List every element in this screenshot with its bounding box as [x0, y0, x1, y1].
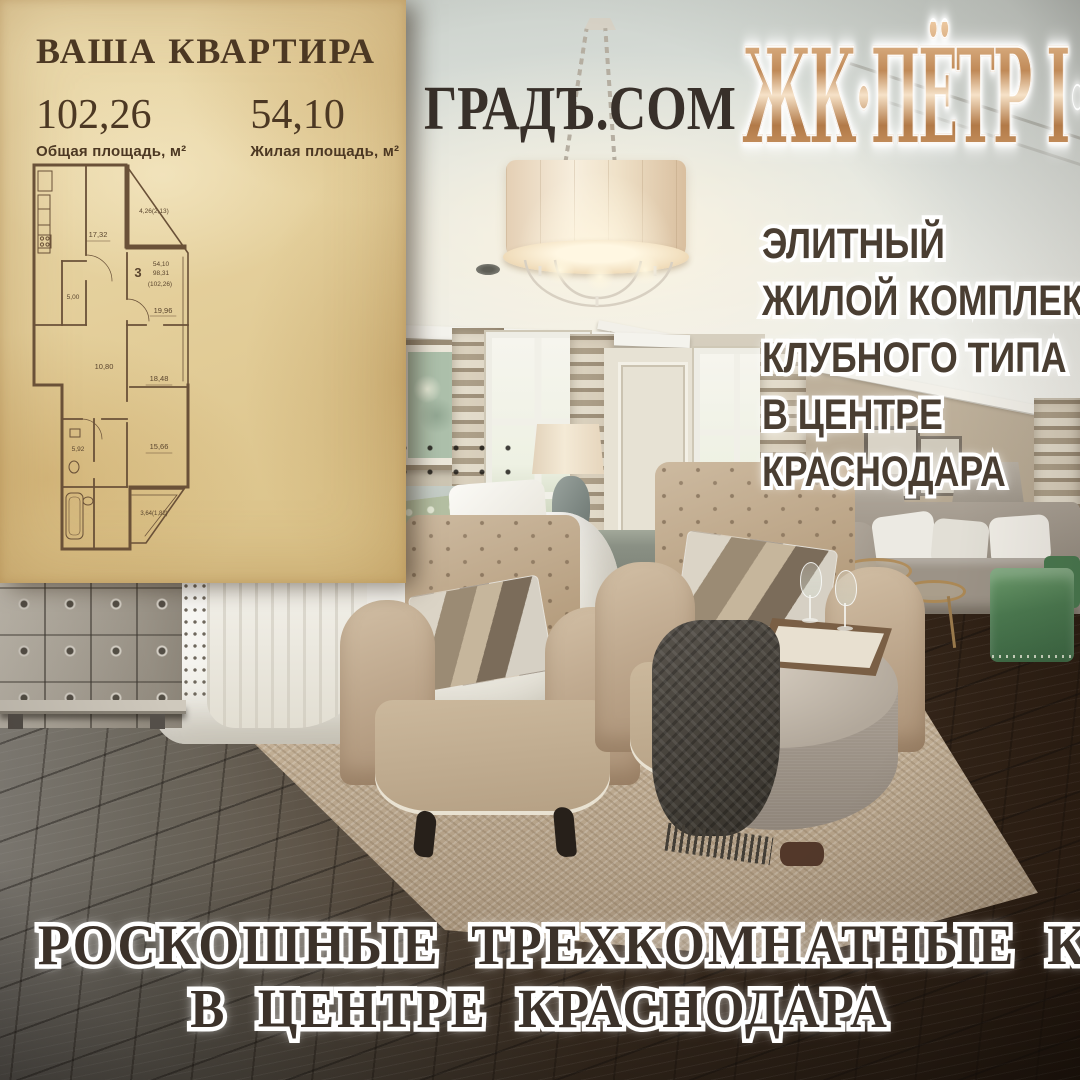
stat-value: 102,26 — [36, 92, 186, 138]
room-area-label: 10,80 — [95, 362, 114, 371]
stat-total-area: 102,26 Общая площадь, м² — [36, 92, 186, 160]
room-area-label: 5,00 — [67, 294, 80, 301]
room-area-label: 4,26(2,13) — [139, 208, 169, 215]
headline-text: РОСКОШНЫЕ ТРЕХКОМНАТНЫЕ КВАРТИРЫ — [38, 914, 1080, 977]
room-area-label: 17,32 — [89, 230, 108, 239]
stat-value: 54,10 — [250, 92, 399, 138]
rooms-count-label: 3 — [134, 265, 141, 280]
feature-line: КРАСНОДАРАКРАСНОДАРА — [762, 444, 1036, 501]
feature-line-text: КРАСНОДАРА — [762, 448, 1006, 496]
area-label: 98,31 — [153, 270, 170, 277]
floorplan: 17,32 4,26(2,13) 3 54,10 98,31 (102,26) … — [26, 156, 212, 576]
living-area-label: 54,10 — [153, 261, 170, 268]
room-area-label: 5,92 — [72, 446, 85, 453]
floorplan-svg: 17,32 4,26(2,13) 3 54,10 98,31 (102,26) … — [26, 156, 212, 576]
features-block: ЭЛИТНЫЙЭЛИТНЫЙ ЖИЛОЙ КОМПЛЕКСЖИЛОЙ КОМПЛ… — [762, 216, 1080, 501]
total-area-label: (102,26) — [148, 281, 172, 288]
feature-line: В ЦЕНТРЕВ ЦЕНТРЕ — [762, 387, 1036, 444]
headline: РОСКОШНЫЕ ТРЕХКОМНАТНЫЕ КВАРТИРЫРОСКОШНЫ… — [0, 914, 1080, 1040]
feature-line-text: ЭЛИТНЫЙ — [762, 220, 945, 268]
headline-text: В ЦЕНТРЕ КРАСНОДАРА — [190, 978, 890, 1039]
stat-label: Жилая площадь, м² — [250, 143, 399, 160]
room-area-label: 15,66 — [150, 442, 169, 451]
apartment-panel: ВАША КВАРТИРА 102,26 Общая площадь, м² 5… — [0, 0, 406, 583]
room-area-label: 18,48 — [150, 374, 169, 383]
stat-living-area: 54,10 Жилая площадь, м² — [250, 92, 399, 160]
panel-title: ВАША КВАРТИРА — [36, 30, 376, 72]
feature-line-text: КЛУБНОГО ТИПА — [762, 334, 1067, 382]
headline-line-1: РОСКОШНЫЕ ТРЕХКОМНАТНЫЕ КВАРТИРЫРОСКОШНЫ… — [38, 914, 1042, 978]
watermark-text: ГРАДЪ.COM — [424, 74, 736, 145]
area-stats: 102,26 Общая площадь, м² 54,10 Жилая пло… — [36, 92, 399, 160]
feature-line-text: ЖИЛОЙ КОМПЛЕКС — [762, 277, 1080, 325]
headline-line-2: В ЦЕНТРЕ КРАСНОДАРАВ ЦЕНТРЕ КРАСНОДАРА — [38, 978, 1042, 1040]
feature-line: КЛУБНОГО ТИПАКЛУБНОГО ТИПА — [762, 330, 1036, 387]
room-area-label: 3,64(1,82) — [140, 511, 167, 517]
poster: ГРАДЪ.COM ЖК·ПЁТР I· ЭЛИТНЫЙЭЛИТНЫЙ ЖИЛО… — [0, 0, 1080, 1080]
feature-line: ЖИЛОЙ КОМПЛЕКСЖИЛОЙ КОМПЛЕКС — [762, 273, 1036, 330]
logo-text: ЖК·ПЁТР I· — [742, 22, 1070, 174]
feature-line-text: В ЦЕНТРЕ — [762, 391, 943, 439]
feature-line: ЭЛИТНЫЙЭЛИТНЫЙ — [762, 216, 1036, 273]
room-area-label: 19,96 — [154, 306, 173, 315]
